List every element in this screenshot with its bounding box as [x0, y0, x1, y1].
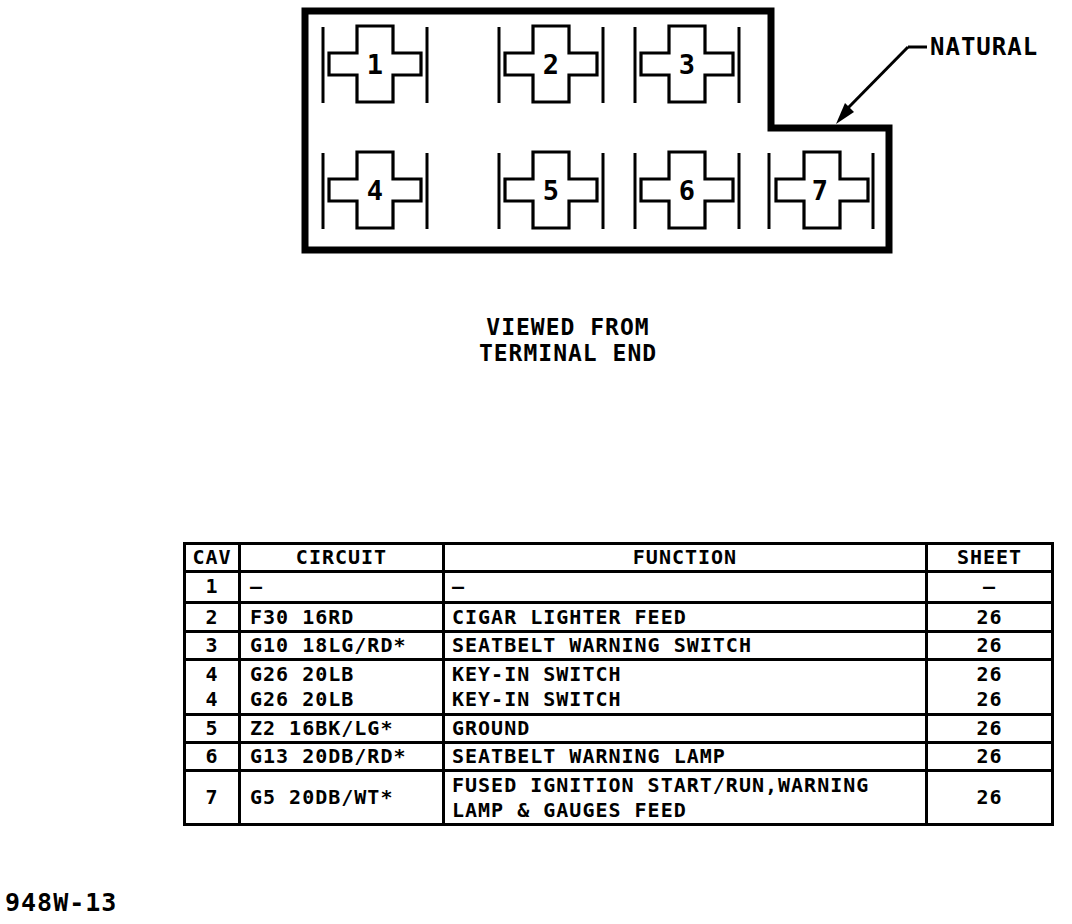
cav-cell: 5 [185, 715, 240, 743]
header-sheet: SHEET [927, 544, 1053, 572]
cavity-5: 5 [499, 152, 603, 229]
cavity-number: 1 [367, 49, 383, 80]
cav-cell: 7 [185, 771, 240, 825]
cavity-3: 3 [635, 26, 739, 103]
function-cell: SEATBELT WARNING LAMP [444, 743, 927, 771]
table-row: 6 G13 20DB/RD* SEATBELT WARNING LAMP 26 [185, 743, 1053, 771]
drawing-number: 948W-13 [5, 888, 117, 917]
sheet-cell: 26 26 [927, 660, 1053, 715]
sheet-cell: 26 [927, 603, 1053, 632]
function-cell: GROUND [444, 715, 927, 743]
sheet-cell: — [927, 572, 1053, 603]
leader-diagonal-segment [847, 47, 908, 109]
view-caption-line1: VIEWED FROM [418, 314, 718, 340]
leader-arrow [836, 47, 927, 124]
scanned-connector-diagram-page: 1 2 3 4 5 [0, 0, 1072, 924]
circuit-cell: F30 16RD [240, 603, 444, 632]
cavity-6: 6 [635, 152, 739, 229]
material-label: NATURAL [930, 33, 1038, 61]
cavity-number: 3 [679, 49, 695, 80]
cav-cell: 3 [185, 632, 240, 660]
table-row: 1 — — — [185, 572, 1053, 603]
cavity-number: 4 [367, 175, 383, 206]
function-cell: SEATBELT WARNING SWITCH [444, 632, 927, 660]
table-row: 4 4 G26 20LB G26 20LB KEY-IN SWITCH KEY-… [185, 660, 1053, 715]
function-cell: CIGAR LIGHTER FEED [444, 603, 927, 632]
cav-cell: 4 4 [185, 660, 240, 715]
cavity-4: 4 [323, 152, 427, 229]
cavity-number: 2 [543, 49, 559, 80]
table-row: 5 Z2 16BK/LG* GROUND 26 [185, 715, 1053, 743]
sheet-cell: 26 [927, 743, 1053, 771]
sheet-cell: 26 [927, 632, 1053, 660]
circuit-cell: G13 20DB/RD* [240, 743, 444, 771]
header-circuit: CIRCUIT [240, 544, 444, 572]
cavity-circuit-table: CAV CIRCUIT FUNCTION SHEET 1 — — — 2 F30… [183, 542, 1054, 826]
table-header-row: CAV CIRCUIT FUNCTION SHEET [185, 544, 1053, 572]
function-cell: KEY-IN SWITCH KEY-IN SWITCH [444, 660, 927, 715]
cav-cell: 2 [185, 603, 240, 632]
circuit-cell: G26 20LB G26 20LB [240, 660, 444, 715]
view-caption: VIEWED FROM TERMINAL END [418, 314, 718, 366]
function-cell: — [444, 572, 927, 603]
table-row: 7 G5 20DB/WT* FUSED IGNITION START/RUN,W… [185, 771, 1053, 825]
header-cav: CAV [185, 544, 240, 572]
cavity-number: 6 [679, 175, 695, 206]
cav-cell: 6 [185, 743, 240, 771]
view-caption-line2: TERMINAL END [418, 340, 718, 366]
cav-cell: 1 [185, 572, 240, 603]
cavity-number: 5 [543, 175, 559, 206]
circuit-cell: — [240, 572, 444, 603]
cavity-2: 2 [499, 26, 603, 103]
connector-diagram: 1 2 3 4 5 [0, 0, 1072, 280]
cavity-7: 7 [769, 152, 873, 229]
circuit-cell: G10 18LG/RD* [240, 632, 444, 660]
sheet-cell: 26 [927, 715, 1053, 743]
function-cell: FUSED IGNITION START/RUN,WARNING LAMP & … [444, 771, 927, 825]
header-function: FUNCTION [444, 544, 927, 572]
cavity-1: 1 [323, 26, 427, 103]
table-row: 2 F30 16RD CIGAR LIGHTER FEED 26 [185, 603, 1053, 632]
circuit-cell: Z2 16BK/LG* [240, 715, 444, 743]
circuit-cell: G5 20DB/WT* [240, 771, 444, 825]
sheet-cell: 26 [927, 771, 1053, 825]
table-row: 3 G10 18LG/RD* SEATBELT WARNING SWITCH 2… [185, 632, 1053, 660]
cavity-number: 7 [812, 175, 828, 206]
